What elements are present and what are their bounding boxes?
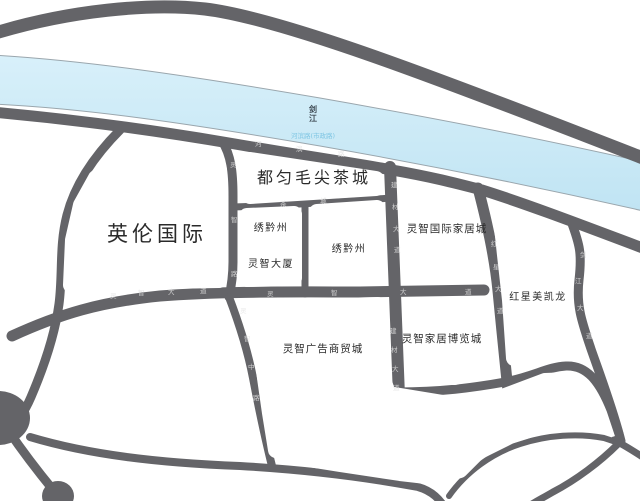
road-jiancai-avenue [390, 167, 399, 396]
block-xiuqianzhou-east [317, 208, 377, 278]
junction-southeast [612, 435, 624, 447]
place-label-xiuqianzhou-west: 绣黔州 [254, 221, 289, 234]
place-label-hongxing-meikailong: 红星美凯龙 [509, 290, 567, 303]
place-label-lingzhi-tower: 灵智大厦 [248, 257, 294, 270]
city-blocks [71, 146, 596, 477]
place-label-lingzhi-ad-trade-city: 灵智广告商贸城 [283, 342, 364, 355]
place-label-lingzhi-intl-home-city: 灵智国际家居城 [407, 222, 488, 235]
promo-map: 剑江 河滨路(市政路) 英伦国际 都匀毛尖茶城 绣黔州 灵智大厦 绣黔州 灵智国… [0, 0, 640, 501]
road-southeast-exit [524, 444, 618, 501]
river-name-label: 剑江 [308, 104, 317, 123]
place-label-maojian-tea-city: 都匀毛尖茶城 [257, 168, 371, 187]
block-hongxing [501, 217, 564, 358]
riverside-road-label: 河滨路(市政路) [291, 131, 335, 140]
place-label-xiuqianzhou-east: 绣黔州 [332, 242, 367, 255]
place-label-yinglun-international: 英伦国际 [107, 222, 207, 246]
place-label-lingzhi-home-expo-city: 灵智家居博览城 [402, 332, 483, 345]
map-canvas: 剑江 河滨路(市政路) 英伦国际 都匀毛尖茶城 绣黔州 灵智大厦 绣黔州 灵智国… [0, 0, 640, 501]
